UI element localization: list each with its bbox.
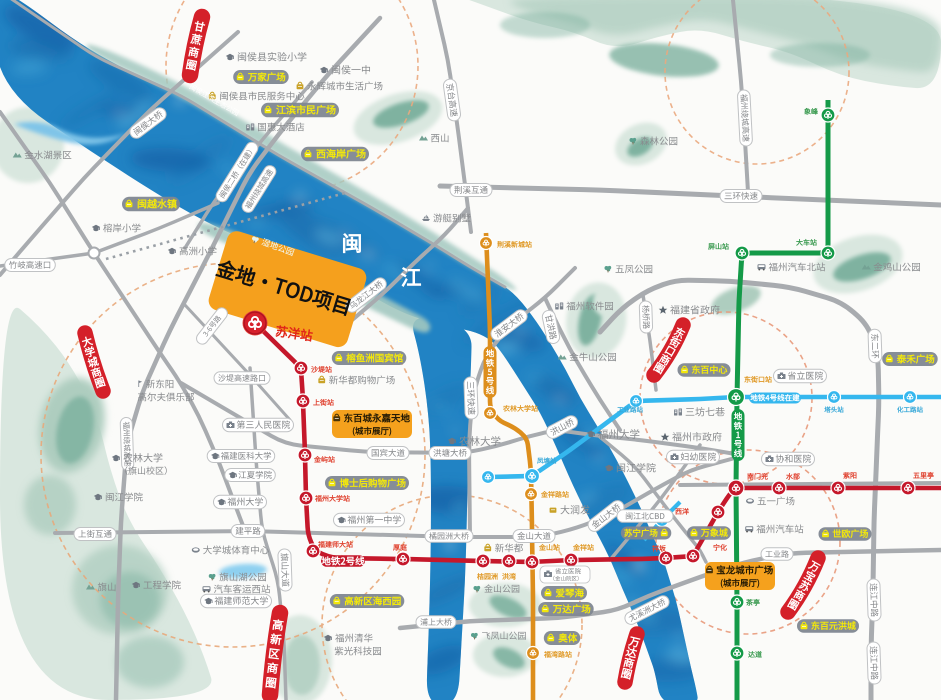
svg-text:东百元洪城: 东百元洪城 <box>811 619 856 632</box>
svg-text:世欧广场: 世欧广场 <box>832 527 868 540</box>
svg-text:浦上大桥: 浦上大桥 <box>420 617 452 628</box>
svg-text:上街站: 上街站 <box>313 398 334 408</box>
svg-text:农林大学站: 农林大学站 <box>502 404 538 414</box>
svg-text:茶亭: 茶亭 <box>745 598 760 608</box>
svg-text:福州大学: 福州大学 <box>227 495 263 508</box>
svg-text:金鸡山公园: 金鸡山公园 <box>873 259 921 273</box>
svg-text:汽车客运西站: 汽车客运西站 <box>213 581 271 595</box>
svg-text:高尔夫俱乐部: 高尔夫俱乐部 <box>137 389 194 403</box>
svg-text:三环快速: 三环快速 <box>724 190 759 202</box>
svg-text:凤塘站: 凤塘站 <box>537 455 557 465</box>
svg-text:东百城永嘉天地: 东百城永嘉天地 <box>343 410 410 424</box>
svg-text:象峰: 象峰 <box>804 107 819 117</box>
svg-text:农林大学: 农林大学 <box>123 450 163 465</box>
svg-text:荆溪新城站: 荆溪新城站 <box>497 240 532 250</box>
svg-text:闽越水镇: 闽越水镇 <box>137 196 177 211</box>
svg-text:闽江北CBD: 闽江北CBD <box>625 511 665 522</box>
svg-text:西洋: 西洋 <box>675 507 689 517</box>
svg-text:化工路站: 化工路站 <box>897 404 924 414</box>
svg-text:三环快速: 三环快速 <box>464 381 477 416</box>
svg-text:新华都: 新华都 <box>495 540 524 554</box>
svg-text:五一广场: 五一广场 <box>757 493 795 507</box>
svg-text:紫阳: 紫阳 <box>843 471 857 481</box>
svg-text:西山: 西山 <box>430 130 449 144</box>
svg-text:福建师范大学: 福建师范大学 <box>214 594 268 607</box>
svg-text:祥坂: 祥坂 <box>652 544 667 554</box>
svg-text:大学城体育中心: 大学城体育中心 <box>203 542 270 556</box>
svg-text:工程学院: 工程学院 <box>143 577 182 591</box>
svg-text:圈: 圈 <box>264 674 277 691</box>
svg-text:橘园洲大桥: 橘园洲大桥 <box>429 531 469 542</box>
svg-text:国惠大酒店: 国惠大酒店 <box>257 119 305 133</box>
svg-text:达道: 达道 <box>748 650 762 660</box>
svg-text:福州第一中学: 福州第一中学 <box>347 513 401 526</box>
svg-text:东百中心: 东百中心 <box>691 363 727 376</box>
svg-text:上街互通: 上街互通 <box>78 528 113 540</box>
svg-text:高新区海西园: 高新区海西园 <box>344 593 401 607</box>
svg-text:旗山大道: 旗山大道 <box>278 553 291 588</box>
svg-text:东二环: 东二环 <box>868 333 881 359</box>
svg-text:工业路站: 工业路站 <box>617 404 644 414</box>
svg-text:厚庭: 厚庭 <box>393 543 408 553</box>
svg-text:泰禾广场: 泰禾广场 <box>896 351 936 365</box>
svg-text:宁化: 宁化 <box>713 543 727 553</box>
svg-text:紫光科技园: 紫光科技园 <box>334 643 382 657</box>
svg-text:金屿站: 金屿站 <box>313 455 335 465</box>
svg-text:农林大学: 农林大学 <box>459 434 501 449</box>
svg-text:(城市展厅): (城市展厅) <box>352 425 392 437</box>
svg-text:五凤公园: 五凤公园 <box>615 261 653 275</box>
svg-text:建平路: 建平路 <box>235 525 261 537</box>
svg-text:线: 线 <box>486 384 495 396</box>
svg-text:金水湖景区: 金水湖景区 <box>24 147 72 161</box>
svg-text:洪塘大桥: 洪塘大桥 <box>433 447 468 459</box>
svg-text:闽: 闽 <box>342 228 363 258</box>
svg-text:妇幼医院: 妇幼医院 <box>680 450 716 463</box>
svg-text:荆溪互通: 荆溪互通 <box>454 184 489 196</box>
svg-text:万达广场: 万达广场 <box>552 601 592 615</box>
svg-text:闽侯县实验小学: 闽侯县实验小学 <box>237 49 307 64</box>
svg-text:福州清华: 福州清华 <box>335 630 374 644</box>
svg-text:高洲小学: 高洲小学 <box>179 243 217 257</box>
svg-text:福建医科大学: 福建医科大学 <box>221 450 273 462</box>
svg-text:屏山站: 屏山站 <box>707 242 729 252</box>
svg-text:江夏学院: 江夏学院 <box>238 469 273 481</box>
svg-text:金牛山公园: 金牛山公园 <box>569 349 617 363</box>
svg-text:桔园洲: 桔园洲 <box>477 572 498 582</box>
svg-text:永辉城市生活广场: 永辉城市生活广场 <box>307 78 383 92</box>
svg-text:万家广场: 万家广场 <box>247 69 287 83</box>
svg-text:协和医院: 协和医院 <box>775 452 811 465</box>
svg-text:旗山: 旗山 <box>97 579 116 593</box>
svg-text:第三人民医院: 第三人民医院 <box>236 418 290 431</box>
svg-text:省立医院: 省立医院 <box>787 369 823 382</box>
svg-text:塔头站: 塔头站 <box>824 404 844 414</box>
svg-text:森林公园: 森林公园 <box>640 133 678 147</box>
svg-text:地铁4号线在建: 地铁4号线在建 <box>750 393 800 404</box>
svg-text:水部: 水部 <box>785 472 800 482</box>
svg-text:地铁2号线: 地铁2号线 <box>321 553 365 567</box>
svg-text:连江中路: 连江中路 <box>867 583 880 618</box>
svg-text:福建师大站: 福建师大站 <box>317 540 353 550</box>
svg-text:线: 线 <box>734 447 743 459</box>
svg-text:福州汽车北站: 福州汽车北站 <box>768 259 826 273</box>
svg-text:金山站: 金山站 <box>538 543 560 553</box>
svg-text:福州大学站: 福州大学站 <box>314 494 350 504</box>
svg-text:闽江学院: 闽江学院 <box>105 489 144 503</box>
svg-text:洪湾: 洪湾 <box>502 572 516 582</box>
svg-text:新东阳: 新东阳 <box>146 376 175 390</box>
svg-text:福建省政府: 福建省政府 <box>670 302 720 317</box>
svg-text:金山公园: 金山公园 <box>484 582 520 595</box>
svg-text:闽江学院: 闽江学院 <box>616 460 656 475</box>
svg-text:爱琴海: 爱琴海 <box>555 585 584 599</box>
svg-text:福州汽车站: 福州汽车站 <box>756 521 804 535</box>
svg-text:连江中路: 连江中路 <box>867 646 880 681</box>
svg-text:国宾大道: 国宾大道 <box>371 447 406 459</box>
svg-text:万象城: 万象城 <box>700 526 728 539</box>
svg-text:江滨市民广场: 江滨市民广场 <box>276 102 336 117</box>
svg-text:沙堤站: 沙堤站 <box>311 365 332 375</box>
svg-text:榕鱼洲国宾馆: 榕鱼洲国宾馆 <box>346 350 404 364</box>
svg-text:(城市展厅): (城市展厅) <box>720 577 760 589</box>
svg-text:博士后购物广场: 博士后购物广场 <box>339 475 406 489</box>
svg-text:西海岸广场: 西海岸广场 <box>316 146 366 161</box>
svg-text:奥体: 奥体 <box>557 630 578 644</box>
svg-text:工业路: 工业路 <box>765 549 789 560</box>
svg-text:宝龙城市广场: 宝龙城市广场 <box>716 562 774 576</box>
svg-text:东街口站: 东街口站 <box>744 375 772 385</box>
svg-text:游艇别墅: 游艇别墅 <box>433 210 472 224</box>
svg-text:金祥路站: 金祥路站 <box>540 490 569 500</box>
svg-text:大车站: 大车站 <box>796 238 817 248</box>
svg-text:五里亭: 五里亭 <box>913 471 934 481</box>
svg-text:飞凤山公园: 飞凤山公园 <box>481 629 526 642</box>
svg-text:闽侯县市民服务中心: 闽侯县市民服务中心 <box>219 88 305 102</box>
svg-text:苏宁广场: 苏宁广场 <box>624 527 659 539</box>
svg-text:杨桥路: 杨桥路 <box>640 305 652 329</box>
svg-text:榕岸小学: 榕岸小学 <box>103 220 141 234</box>
svg-text:（旗山校区）: （旗山校区） <box>119 464 173 477</box>
svg-text:新华都购物广场: 新华都购物广场 <box>329 372 396 386</box>
svg-text:福州大学: 福州大学 <box>598 427 640 442</box>
svg-text:三坊七巷: 三坊七巷 <box>685 404 725 419</box>
svg-text:福州市政府: 福州市政府 <box>672 429 722 444</box>
svg-text:大润发: 大润发 <box>560 502 590 517</box>
svg-text:江: 江 <box>401 262 422 292</box>
svg-text:南门兜: 南门兜 <box>747 472 768 482</box>
svg-text:福湾路站: 福湾路站 <box>543 650 572 660</box>
svg-text:沙堤高速路口: 沙堤高速路口 <box>218 373 266 384</box>
svg-text:福州软件园: 福州软件园 <box>566 298 614 312</box>
svg-text:竹岐高速口: 竹岐高速口 <box>9 259 52 271</box>
svg-text:金祥站: 金祥站 <box>572 543 594 553</box>
svg-text:闽侯一中: 闽侯一中 <box>331 62 371 77</box>
svg-text:（金山院区）: （金山院区） <box>549 575 582 583</box>
